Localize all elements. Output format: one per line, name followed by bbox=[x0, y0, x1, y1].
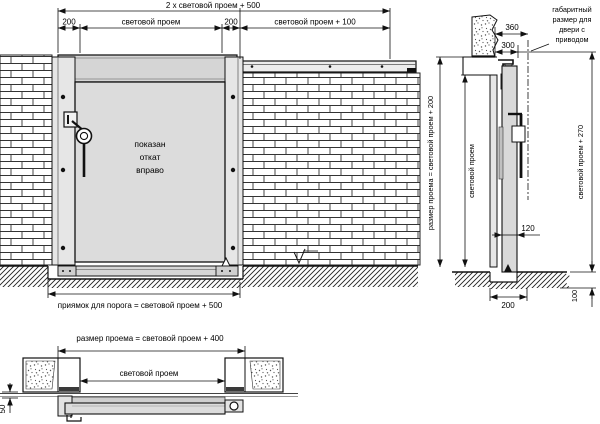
plan-track-strip bbox=[72, 397, 225, 403]
plan-dim-opening-label: световой проем bbox=[120, 369, 179, 378]
plan-roller bbox=[230, 402, 238, 410]
dim-200-pit bbox=[490, 288, 527, 301]
dim-200-right-label: 200 bbox=[224, 18, 238, 27]
dim-opening-plus200-label: размер проема = световой проем + 200 bbox=[426, 96, 435, 230]
svg-text:приводом: приводом bbox=[555, 35, 588, 44]
dim-opening-plus100-label: световой проем + 100 bbox=[274, 18, 356, 27]
brick-wall-left bbox=[0, 55, 52, 265]
frame-post-right bbox=[225, 57, 243, 265]
svg-text:габаритный: габаритный bbox=[552, 5, 591, 14]
dim-120-label: 120 bbox=[521, 224, 535, 233]
svg-text:размер для: размер для bbox=[552, 15, 591, 24]
dim-100-label: 100 bbox=[570, 290, 579, 302]
lintel-outline bbox=[463, 57, 497, 75]
elevation-view: показан откат вправо bbox=[0, 1, 420, 310]
section-dim-opening-label: световой проем bbox=[467, 144, 476, 198]
pier-right bbox=[225, 358, 283, 392]
section-view: 360 300 габаритный размер для двери с пр… bbox=[426, 5, 596, 310]
brick-wall-right bbox=[243, 73, 420, 265]
track-rail bbox=[235, 61, 416, 73]
dim-300-label: 300 bbox=[501, 41, 515, 50]
drawing-canvas: показан откат вправо bbox=[0, 0, 600, 424]
elevation-dimensions-top bbox=[58, 8, 390, 59]
plan-view: размер проема = световой проем + 400 све… bbox=[0, 334, 298, 421]
drive-note: габаритный размер для двери с приводом bbox=[552, 5, 591, 44]
plan-door-leaf bbox=[65, 403, 225, 414]
dim-360-label: 360 bbox=[505, 23, 519, 32]
dim-opening-label: световой проем bbox=[122, 18, 181, 27]
floor-right bbox=[243, 266, 418, 287]
dim-50-label: 50 bbox=[0, 404, 7, 413]
door-note-line1: показан bbox=[134, 139, 165, 149]
drive-note-leader bbox=[531, 44, 549, 51]
dim-opening-plus400-label: размер проема = световой проем + 400 bbox=[76, 334, 224, 343]
dim-200-left-label: 200 bbox=[62, 18, 76, 27]
rail-end-cap bbox=[407, 68, 416, 73]
section-door-leaf bbox=[502, 66, 517, 272]
technical-drawing: показан откат вправо bbox=[0, 0, 600, 424]
plan-dimension-top bbox=[58, 346, 245, 360]
section-floor bbox=[452, 272, 570, 289]
dim-opening-plus270-label: световой проем + 270 bbox=[576, 125, 585, 199]
pier-left bbox=[23, 358, 80, 392]
door-note-line2: откат bbox=[140, 152, 161, 162]
plan-door-assembly bbox=[58, 396, 243, 421]
dim-total-label: 2 х световой проем + 500 bbox=[166, 1, 261, 10]
floor-left bbox=[0, 266, 48, 287]
section-wall-block bbox=[472, 15, 498, 57]
frame-post-left bbox=[52, 57, 75, 265]
dim-200-label: 200 bbox=[501, 301, 515, 310]
svg-text:двери с: двери с bbox=[559, 25, 585, 34]
section-frame-post bbox=[490, 75, 497, 267]
dim-pit-label: приямок для порога = световой проем + 50… bbox=[58, 301, 223, 310]
pit-bottom bbox=[48, 279, 243, 288]
door-note-line3: вправо bbox=[136, 165, 164, 175]
header-hood bbox=[58, 55, 237, 82]
